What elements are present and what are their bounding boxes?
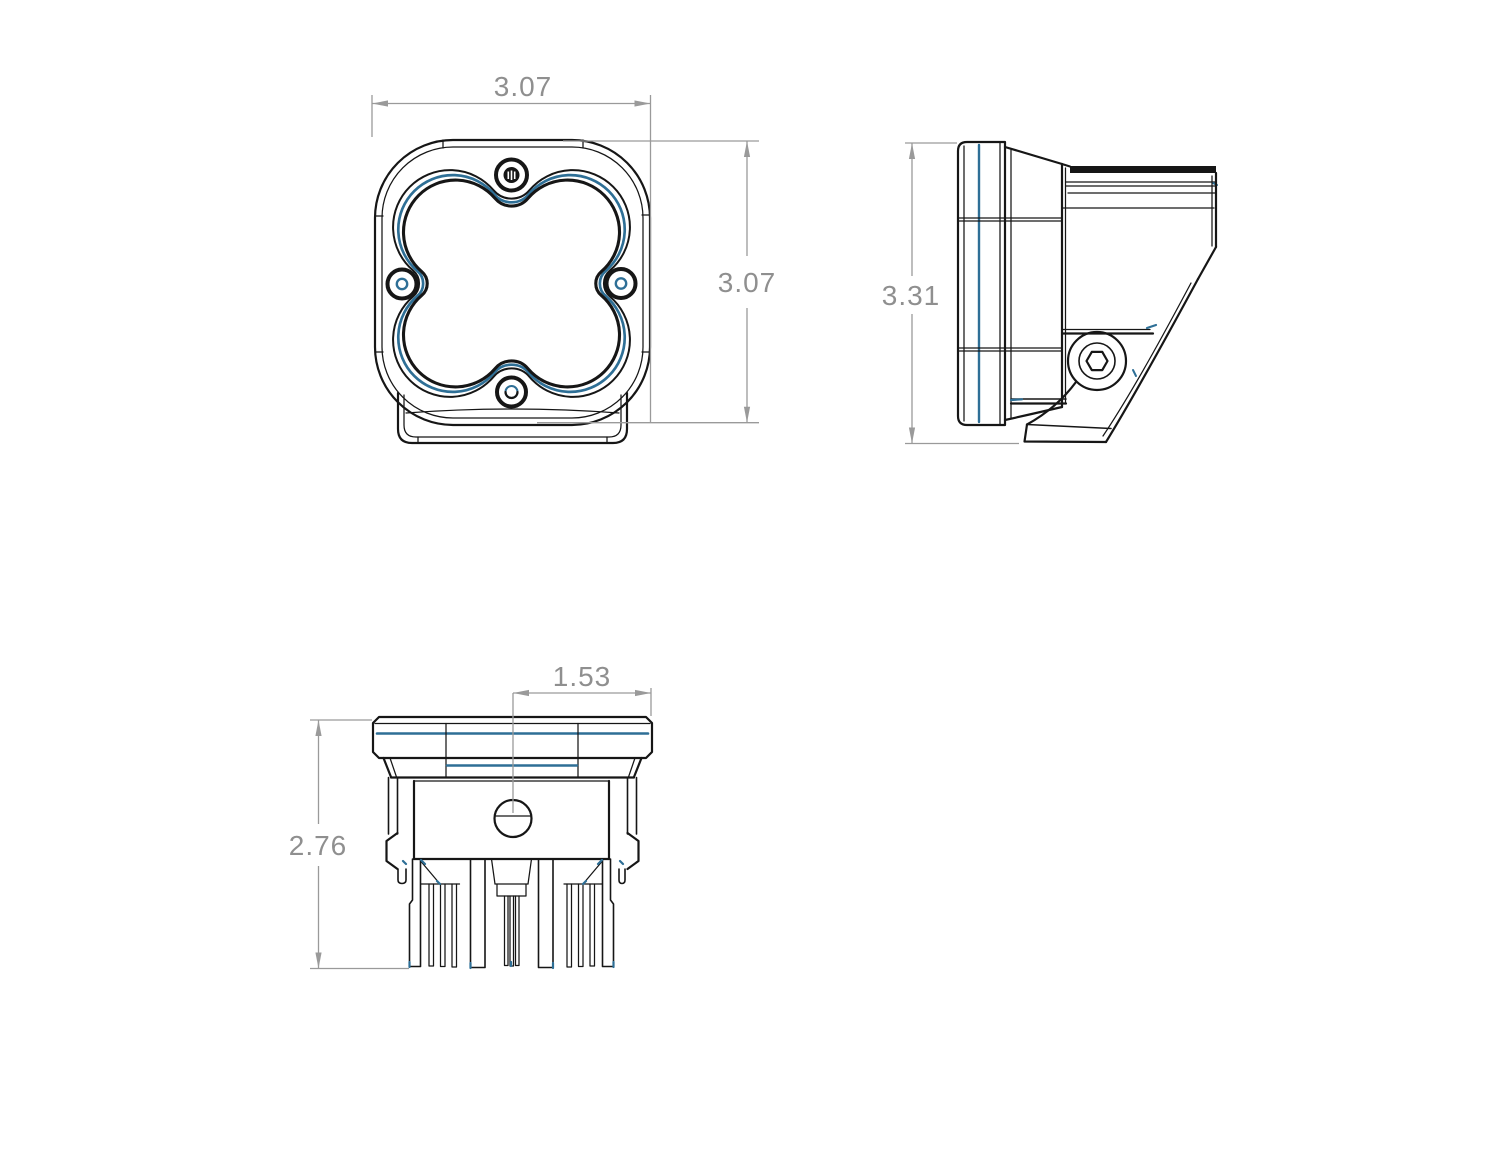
screw-right	[607, 269, 636, 298]
heatsink-fins	[403, 859, 623, 968]
dim-label-front-height: 3.07	[718, 267, 777, 298]
front-view	[375, 140, 650, 443]
dim-front-width: 3.07	[372, 71, 651, 423]
side-bezel	[1005, 147, 1066, 420]
side-heatsink-body	[1062, 164, 1217, 442]
technical-drawing-canvas: 3.07 3.07 3.31 2.76 1.53	[0, 0, 1500, 1159]
screw-left	[388, 270, 417, 299]
drawing-page: 3.07 3.07 3.31 2.76 1.53	[0, 0, 1500, 1159]
dim-label-bottom-height: 2.76	[289, 830, 348, 861]
bottom-back-plate	[414, 781, 609, 859]
side-clip-right	[628, 833, 639, 869]
side-lens	[958, 142, 1062, 425]
side-view	[958, 142, 1217, 442]
screw-bottom	[497, 378, 526, 407]
lens-quatrefoil	[393, 170, 630, 397]
screw-top	[496, 160, 527, 191]
dim-side-height: 3.31	[882, 143, 1019, 444]
ear-left	[398, 869, 406, 884]
side-clip-left	[387, 833, 398, 869]
hex-bolt	[1087, 352, 1108, 370]
dim-bottom-center-offset: 1.53	[513, 661, 651, 813]
dim-front-height: 3.07	[537, 141, 776, 423]
side-bracket	[1025, 325, 1157, 442]
dim-label-front-width: 3.07	[494, 71, 553, 102]
dim-label-bottom-center-offset: 1.53	[553, 661, 612, 692]
dim-label-side-height: 3.31	[882, 280, 941, 311]
ear-right	[619, 869, 625, 884]
